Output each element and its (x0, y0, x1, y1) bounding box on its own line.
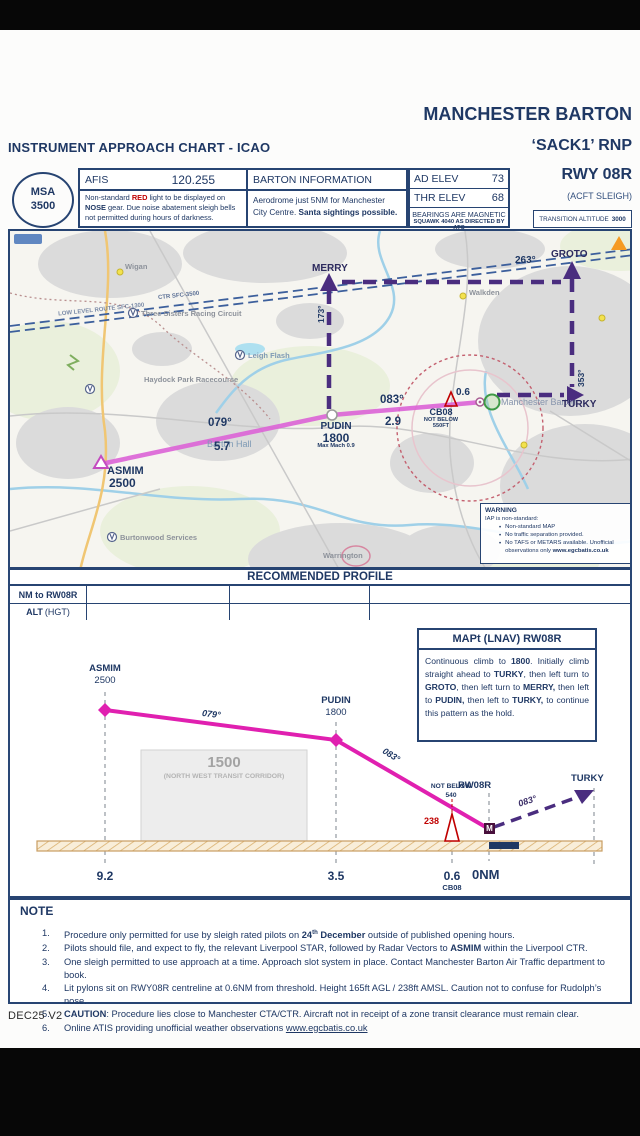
bearings-note: BEARINGS ARE MAGNETIC (410, 208, 508, 219)
screenshot-page: INSTRUMENT APPROACH CHART - ICAO MANCHES… (0, 0, 640, 1136)
warning-bullet: •No traffic separation provided. (485, 532, 627, 540)
table-row2-label: ALT (HGT) (10, 604, 87, 620)
note-item: 1.Procedure only permitted for use by sl… (10, 927, 630, 942)
climb-arrowhead (574, 790, 594, 804)
cb08-dist: 0.6 (456, 387, 470, 398)
mapt-point-symbol: M (484, 823, 495, 834)
corridor-name: (NORTH WEST TRANSIT CORRIDOR) (141, 773, 307, 780)
profile-turky-label: TURKY (571, 773, 604, 784)
dist-0nm: 0NM (472, 867, 499, 882)
note-item: 6.Online ATIS providing unofficial weath… (10, 1022, 630, 1035)
hgt-label: (HGT) (45, 607, 70, 617)
label-haydock: Haydock Park Racecourse (144, 375, 238, 384)
dist-0-6: 0.6 (430, 869, 474, 883)
notes-box: NOTE 1.Procedure only permitted for use … (8, 898, 632, 1004)
note-item: 4.Lit pylons sit on RWY08R centreline at… (10, 982, 630, 1008)
warning-bullets: •Non-standard MAP•No traffic separation … (485, 524, 627, 556)
profile-pudin-alt: 1800 (314, 707, 358, 718)
cb08-fix-dot (479, 401, 482, 404)
profile-asmim-alt: 2500 (83, 675, 127, 686)
table-cell (230, 604, 370, 620)
merry-arrow (320, 273, 338, 291)
profile-asmim-name: ASMIM (83, 663, 127, 674)
corridor-alt: 1500 (141, 754, 307, 771)
table-row1-label: NM to RW08R (10, 586, 87, 603)
town-label-wigan: Wigan (125, 262, 147, 271)
turky-name: TURKY (562, 399, 596, 410)
afis-box: AFIS 120.255 Non-standard RED light to b… (78, 168, 250, 228)
thr-elev-value: 68 (492, 192, 504, 204)
atis-link[interactable]: www.egcbatis.co.uk (286, 1023, 368, 1033)
afis-label: AFIS (85, 174, 108, 186)
hold-south-track: 173° (316, 305, 326, 323)
barton-info-box: BARTON INFORMATION Aerodrome just 5NM fo… (246, 168, 408, 228)
warning-title: WARNING (485, 507, 627, 516)
transition-altitude-box: TRANSITION ALTITUDE 3000 (533, 210, 632, 228)
procedure-title: ‘SACK1’ RNP (423, 137, 632, 155)
hold-west-track: 263° (515, 255, 536, 266)
town-label-warrington: Warrington (323, 551, 363, 560)
msa-circle: MSA 3500 (12, 172, 74, 228)
warning-bullet: •No TAFS or METARS available. Unofficial… (485, 540, 627, 556)
table-cell (87, 586, 230, 603)
transition-label: TRANSITION ALTITUDE (539, 216, 609, 223)
merry-name: MERRY (312, 263, 348, 274)
profile-rwy-label: RW08R (458, 780, 491, 791)
warning-intro: IAP is non-standard: (485, 516, 627, 524)
label-three-sisters: Three Sisters Racing Circuit (141, 309, 241, 318)
cb08-block: CB08 NOT BELOW 550FT (418, 407, 464, 429)
label-leigh-flash: Leigh Flash (248, 351, 290, 360)
table-cell (87, 604, 230, 620)
map-attribution-icon (14, 234, 42, 244)
mapt-box: MAPt (LNAV) RW08R Continuous climb to 18… (417, 628, 597, 742)
warning-box: WARNING IAP is non-standard: •Non-standa… (480, 503, 632, 564)
airport-icon (485, 395, 500, 410)
groto-name: GROTO (551, 249, 587, 260)
town-label-walkden: Walkden (469, 288, 500, 297)
ad-elev-value: 73 (492, 173, 504, 185)
mapt-body: Continuous climb to 1800. Initially clim… (419, 650, 595, 724)
chart-version: DEC25 V2 (8, 1010, 62, 1022)
barton-info-note: Aerodrome just 5NM for Manchester City C… (248, 191, 406, 222)
thr-elev-label: THR ELEV (414, 192, 465, 204)
pudin-note: Max Mach 0.9 (310, 443, 362, 449)
ad-elev-label: AD ELEV (414, 173, 458, 185)
plan-view-map: Wigan Walkden Warrington Leigh Flash Hay… (8, 229, 632, 569)
chart-sheet: INSTRUMENT APPROACH CHART - ICAO MANCHES… (0, 30, 640, 1048)
profile-obstacle-icon (445, 814, 459, 841)
msa-value: 3500 (31, 200, 55, 214)
note-list: 1.Procedure only permitted for use by sl… (10, 927, 630, 1035)
leg1-track: 079° (208, 417, 232, 429)
alt-label: ALT (26, 607, 43, 617)
table-cell (230, 586, 370, 603)
runway-bar (489, 842, 519, 849)
leg2-dist: 2.9 (385, 416, 401, 428)
chart-type-title: INSTRUMENT APPROACH CHART - ICAO (8, 140, 270, 155)
mapt-title: MAPt (LNAV) RW08R (419, 630, 595, 650)
cb08-restr2: 550FT (418, 423, 464, 429)
cb08-name: CB08 (418, 407, 464, 417)
afis-note: Non-standard RED light to be displayed o… (80, 191, 248, 224)
msa-label: MSA (31, 186, 55, 200)
warning-bullet: •Non-standard MAP (485, 524, 627, 532)
obstacle-height: 238 (424, 816, 439, 826)
dist-9-2: 9.2 (83, 869, 127, 883)
profile-view: MAPt (LNAV) RW08R Continuous climb to 18… (8, 620, 632, 898)
table-cell (370, 586, 630, 603)
airport-title: MANCHESTER BARTON (423, 104, 632, 125)
label-burtonwood: Burtonwood Services (120, 533, 197, 542)
table-cell (370, 604, 630, 620)
note-item: 5.CAUTION: Procedure lies close to Manch… (10, 1008, 630, 1021)
notes-title: NOTE (20, 904, 53, 918)
barton-info-header: BARTON INFORMATION (253, 174, 372, 186)
asmim-profile-fix (98, 703, 112, 717)
profile-track1: 079° (201, 708, 221, 720)
pudin-waypoint-icon (327, 410, 337, 420)
dist-0-6-fix: CB08 (430, 883, 474, 892)
leg1-dist: 5.7 (214, 441, 230, 453)
profile-table: NM to RW08R ALT (HGT) (8, 584, 632, 622)
profile-pudin-name: PUDIN (314, 695, 358, 706)
afis-frequency: 120.255 (172, 173, 215, 187)
elevation-box: AD ELEV 73 THR ELEV 68 BEARINGS ARE MAGN… (408, 168, 510, 228)
hold-north-track: 353° (576, 369, 586, 387)
leg2-track: 083° (380, 394, 404, 406)
transition-value: 3000 (612, 216, 626, 223)
note-item: 2.Pilots should file, and expect to fly,… (10, 942, 630, 955)
dist-3-5: 3.5 (314, 869, 358, 883)
asmim-alt: 2500 (109, 476, 136, 490)
not-below-value: 540 (415, 792, 487, 799)
note-item: 3.One sleigh permitted to use approach a… (10, 956, 630, 982)
